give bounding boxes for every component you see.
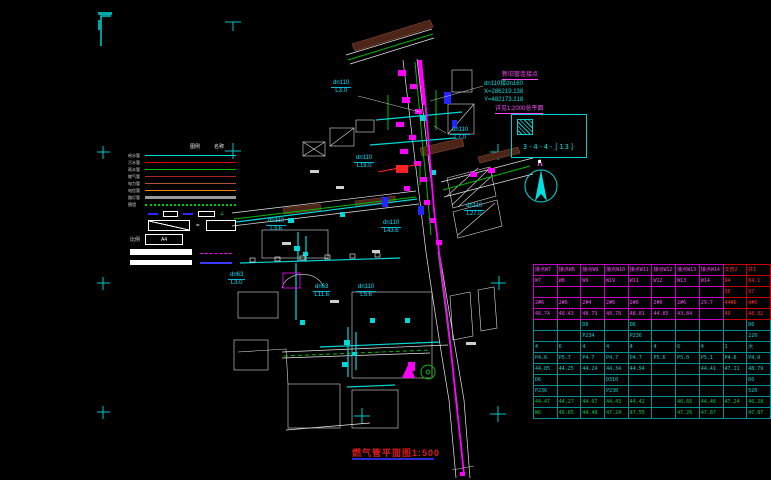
table-cell: 44.25 [557, 364, 581, 375]
table-cell: P4.0 [747, 353, 771, 364]
table-cell: 2#6 [605, 298, 629, 309]
table-cell: 44.48 [581, 408, 605, 419]
table-cell [676, 364, 700, 375]
table-row: P4.6P5.7P4.7P4.7P4.7P5.6P5.0P5.1P4.6P4.0 [534, 353, 771, 364]
table-cell [557, 386, 581, 397]
equals-sign: = [196, 223, 200, 229]
table-cell: 46.28 [747, 397, 771, 408]
pipe-label: dn63L3.0 [228, 272, 245, 287]
table-cell [676, 287, 700, 298]
table-cell: 36 [723, 287, 747, 298]
table-cell: 4 [534, 342, 558, 353]
table-cell: 44.43 [605, 397, 629, 408]
table-cell [723, 375, 747, 386]
magenta-dash-line-icon [200, 253, 232, 254]
table-cell: 43.84 [676, 309, 700, 320]
legend-header-name: 名称 [214, 143, 224, 150]
table-cell: W13 [676, 276, 700, 287]
table-cell: 4 [628, 342, 652, 353]
table-cell: 44.85 [534, 364, 558, 375]
legend-item: 给水管 [128, 152, 236, 159]
table-cell [652, 375, 676, 386]
table-cell: 44.47 [534, 397, 558, 408]
table-cell [652, 397, 676, 408]
table-cell: 6 [676, 342, 700, 353]
legend-items: 给水管污水管雨水管燃气管电力管电信管路灯管围墙 [128, 152, 236, 208]
detail-reference-box: 3-4-4-[13] [511, 114, 587, 158]
legend-header-symbol: 图例 [190, 143, 200, 150]
table-cell: W14 [699, 276, 723, 287]
legend-symbol-row: ∠ [148, 211, 236, 217]
table-cell [605, 287, 629, 298]
annotation-note: 新旧管连接点 [502, 71, 538, 80]
table-cell: 44.48 [699, 397, 723, 408]
table-cell: 44.94 [628, 364, 652, 375]
pipe-label: dn110L19.0 [354, 155, 374, 170]
table-cell: 接点W10 [605, 265, 629, 276]
table-cell: 29.7 [699, 298, 723, 309]
magenta-service-blocks [396, 70, 495, 476]
table-cell: D6 [581, 320, 605, 331]
table-cell: 48.78 [605, 309, 629, 320]
hatched-duct-bars [283, 20, 520, 214]
table-cell: 47.24 [605, 408, 629, 419]
title-underline [352, 458, 434, 460]
table-cell: 44#6 [723, 298, 747, 309]
table-cell: P4.6 [723, 353, 747, 364]
table-cell: 47.87 [747, 408, 771, 419]
table-cell: P5.1 [699, 353, 723, 364]
table-cell: P4.7 [628, 353, 652, 364]
table-cell: 接点W9 [581, 265, 605, 276]
legend-headers: 图例 名称 [190, 143, 236, 150]
table-cell: P5.6 [652, 353, 676, 364]
table-cell: P236 [628, 331, 652, 342]
table-cell [699, 309, 723, 320]
table-cell: W19 [605, 276, 629, 287]
pipe-label: dn110L43.6 [381, 220, 401, 235]
table-cell: 44.41 [699, 364, 723, 375]
valve-circle [421, 365, 435, 379]
legend-panel: 图例 名称 给水管污水管雨水管燃气管电力管电信管路灯管围墙 ∠ = 比例 A4 [128, 143, 236, 265]
table-cell: P4.7 [581, 353, 605, 364]
table-cell [557, 287, 581, 298]
table-cell: 2#4 [581, 298, 605, 309]
table-cell: D310 [605, 375, 629, 386]
red-power-line [378, 164, 420, 173]
table-cell: 47.26 [676, 408, 700, 419]
table-cell [652, 386, 676, 397]
table-cell: P4.6 [534, 353, 558, 364]
legend-item: 围墙 [128, 201, 236, 208]
table-cell: 2#6 [652, 298, 676, 309]
detail-note: 详见1:2000总平面 [495, 103, 543, 114]
table-cell [723, 331, 747, 342]
table-cell: D6 [628, 320, 652, 331]
connection-annotation: 新旧管连接点 dn110接dn160 X=286219.138 Y=482173… [484, 71, 538, 104]
table-row: P236P230520 [534, 386, 771, 397]
table-cell [534, 287, 558, 298]
table-cell: 6 [557, 342, 581, 353]
table-cell: 44.27 [557, 397, 581, 408]
table-cell [699, 386, 723, 397]
table-cell [605, 320, 629, 331]
table-cell: P236 [534, 386, 558, 397]
magenta-outline-shapes [283, 273, 300, 288]
table-cell: W12 [652, 276, 676, 287]
table-cell: 47.11 [723, 364, 747, 375]
table-cell [699, 320, 723, 331]
table-cell [723, 320, 747, 331]
table-cell: 2#6 [557, 298, 581, 309]
detail-reference-number: 3-4-4-[13] [512, 143, 586, 151]
table-cell [699, 375, 723, 386]
blue-dash-icon [183, 213, 193, 215]
table-cell: D6 [534, 375, 558, 386]
table-cell: 46.65 [557, 408, 581, 419]
table-cell: 48.81 [628, 309, 652, 320]
table-cell: W8 [557, 276, 581, 287]
table-cell: 支管2 [723, 265, 747, 276]
table-cell: 井1 [747, 265, 771, 276]
table-cell [557, 375, 581, 386]
pipe-label: dn110L27.0 [464, 203, 484, 218]
pipe-label: dn110L3.0 [331, 80, 351, 95]
table-cell [723, 408, 747, 419]
table-cell: 4 [581, 342, 605, 353]
table-cell: 44.85 [652, 309, 676, 320]
a4-frame-box: A4 [145, 234, 183, 245]
table-row: W7W8W9W19W11W12W13W149484.1 [534, 276, 771, 287]
table-cell [628, 375, 652, 386]
pipe-label: dn110L7.0 [450, 127, 470, 142]
table-row: D6D6D6 [534, 320, 771, 331]
empty-box-icon [206, 220, 236, 231]
pipe-label: dn110L3.6 [266, 218, 286, 233]
table-row: W646.6544.4847.2447.5547.2647.8747.87 [534, 408, 771, 419]
white-box-icon [198, 211, 215, 217]
table-cell: 接点W12 [652, 265, 676, 276]
table-cell: 4#6 [747, 298, 771, 309]
table-cell [605, 331, 629, 342]
table-cell: 接点W8 [557, 265, 581, 276]
table-row: 464444641大 [534, 342, 771, 353]
annotation-pipe: dn110接dn160 [484, 81, 523, 87]
white-box-icon [163, 211, 178, 217]
table-cell: 47.55 [628, 408, 652, 419]
legend-item: 雨水管 [128, 166, 236, 173]
table-cell: 48.02 [747, 309, 771, 320]
table-cell: 47.87 [699, 408, 723, 419]
table-cell: P230 [605, 386, 629, 397]
legend-item: 电力管 [128, 180, 236, 187]
table-cell: 44.34 [605, 364, 629, 375]
table-cell: 49 [723, 309, 747, 320]
annotation-leader-lines [358, 86, 483, 470]
table-cell: 48.73 [581, 309, 605, 320]
table-cell: 46.65 [676, 397, 700, 408]
table-cell [534, 331, 558, 342]
table-cell: 48.79 [747, 364, 771, 375]
blue-dash-icon [148, 213, 158, 215]
table-cell: 44.24 [581, 364, 605, 375]
cad-canvas: dn110L3.0dn110L7.0dn110L19.0dn110L27.0dn… [0, 0, 771, 480]
table-row: D6D310D6 [534, 375, 771, 386]
table-cell: P5.0 [676, 353, 700, 364]
table-cell: 4 [605, 342, 629, 353]
table-cell: 48.43 [557, 309, 581, 320]
table-cell [699, 287, 723, 298]
table-cell [581, 287, 605, 298]
table-cell: 4 [699, 342, 723, 353]
annotation-coord-x: X=286219.138 [484, 89, 523, 95]
table-cell: D6 [747, 375, 771, 386]
table-cell: 520 [747, 386, 771, 397]
table-cell [676, 386, 700, 397]
table-cell: 94 [723, 276, 747, 287]
table-cell: W7 [534, 276, 558, 287]
table-row: 44.4744.2744.0744.4344.4246.6544.4847.24… [534, 397, 771, 408]
table-cell [557, 331, 581, 342]
magenta-gas-main [419, 60, 464, 475]
table-row: 48.7448.4348.7348.7848.8144.8543.844948.… [534, 309, 771, 320]
white-bar-icon [130, 260, 192, 265]
table-cell: 48.74 [534, 309, 558, 320]
diagonal-box-icon [148, 220, 190, 231]
legend-building-row: = [148, 220, 236, 231]
table-cell: 44.07 [581, 397, 605, 408]
table-row: 接点W7接点W8接点W9接点W10接点W11接点W12接点W13接点W14支管2… [534, 265, 771, 276]
table-cell: 接点W13 [676, 265, 700, 276]
table-row: P234P236220 [534, 331, 771, 342]
table-cell: 接点W14 [699, 265, 723, 276]
angle-symbol-icon: ∠ [220, 211, 224, 217]
pipe-label: dn110L5.6 [356, 284, 376, 299]
table-cell: D6 [747, 320, 771, 331]
table-cell [534, 320, 558, 331]
table-cell [652, 320, 676, 331]
table-cell: P4.7 [605, 353, 629, 364]
table-cell [699, 331, 723, 342]
white-bar-icon [130, 249, 192, 255]
table-cell: 1 [723, 342, 747, 353]
table-cell [628, 386, 652, 397]
building-outlines [234, 70, 502, 428]
table-cell: 84.1 [747, 276, 771, 287]
table-cell: W9 [581, 276, 605, 287]
table-cell [652, 331, 676, 342]
table-cell: W11 [628, 276, 652, 287]
table-cell: 2#6 [676, 298, 700, 309]
legend-item: 路灯管 [128, 194, 236, 201]
table-cell: 220 [747, 331, 771, 342]
table-cell [652, 364, 676, 375]
table-cell: 2#6 [534, 298, 558, 309]
table-cell: 接点W7 [534, 265, 558, 276]
table-row: 3697 [534, 287, 771, 298]
blue-solid-line-icon [200, 262, 232, 264]
legend-item: 电信管 [128, 187, 236, 194]
well-data-table: 接点W7接点W8接点W9接点W10接点W11接点W12接点W13接点W14支管2… [533, 264, 771, 419]
table-cell: W6 [534, 408, 558, 419]
hatch-swatch-icon [517, 119, 533, 135]
legend-scale-row: 比例 A4 [130, 234, 236, 245]
table-cell [652, 408, 676, 419]
table-cell [723, 386, 747, 397]
table-cell: 97 [747, 287, 771, 298]
table-row: 44.8544.2544.2444.3444.9444.4147.1148.79 [534, 364, 771, 375]
pipe-label: dn63L11.6 [313, 284, 330, 299]
table-cell [581, 386, 605, 397]
scale-label: 比例 [130, 236, 140, 243]
table-cell [676, 320, 700, 331]
table-cell [676, 331, 700, 342]
table-cell: 4 [652, 342, 676, 353]
table-cell [676, 375, 700, 386]
table-cell: 接点W11 [628, 265, 652, 276]
table-cell: 47.24 [723, 397, 747, 408]
table-cell [557, 320, 581, 331]
legend-bar-row [128, 249, 236, 265]
legend-item: 污水管 [128, 159, 236, 166]
table-row: 2#62#62#42#62#62#62#629.744#64#6 [534, 298, 771, 309]
corner-marker [98, 12, 112, 46]
table-cell [628, 287, 652, 298]
table-cell: 2#6 [628, 298, 652, 309]
legend-item: 燃气管 [128, 173, 236, 180]
table-cell: 大 [747, 342, 771, 353]
table-cell [652, 287, 676, 298]
table-cell: 44.42 [628, 397, 652, 408]
table-cell: P234 [581, 331, 605, 342]
table-cell: P5.7 [557, 353, 581, 364]
table-cell [581, 375, 605, 386]
